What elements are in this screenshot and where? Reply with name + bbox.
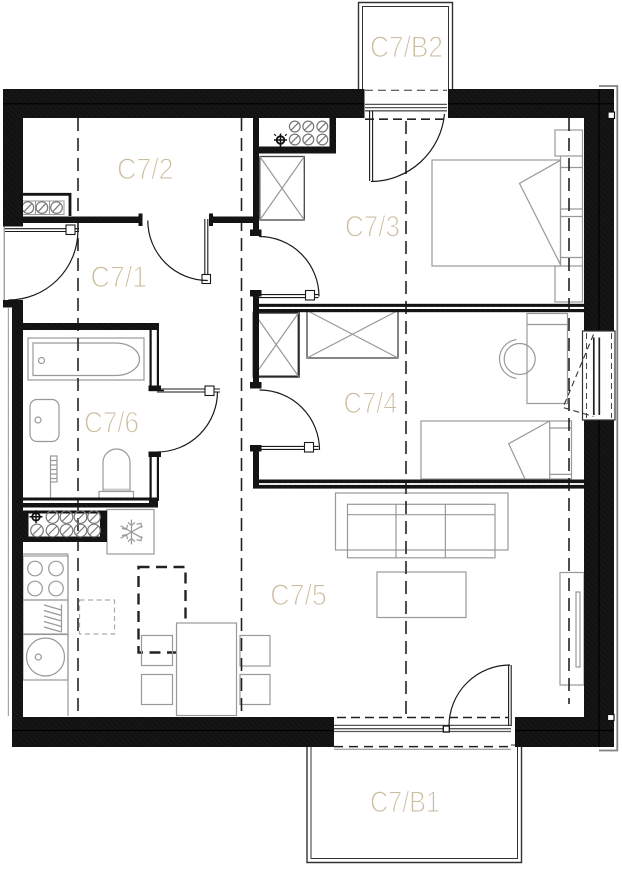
svg-text:C7/6: C7/6: [84, 406, 139, 439]
svg-text:C7/B1: C7/B1: [370, 786, 440, 819]
svg-text:C7/1: C7/1: [91, 261, 148, 294]
svg-text:C7/4: C7/4: [344, 387, 398, 420]
svg-text:C7/2: C7/2: [117, 153, 174, 186]
svg-text:C7/B2: C7/B2: [370, 31, 443, 64]
svg-text:C7/5: C7/5: [270, 579, 327, 612]
svg-text:C7/3: C7/3: [345, 210, 400, 243]
